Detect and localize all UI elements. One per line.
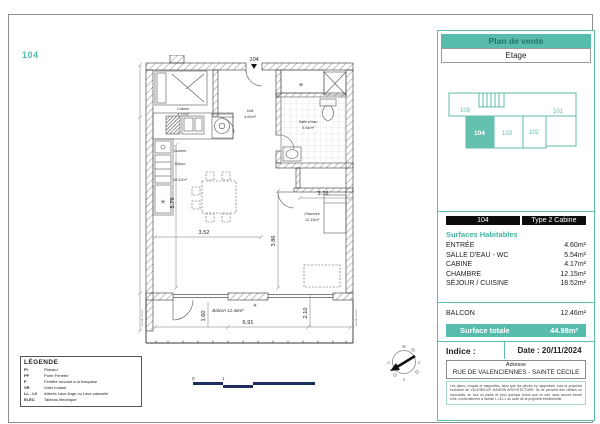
entry-unit-label: 104 — [249, 57, 258, 63]
compass: N E S O — [384, 334, 424, 386]
key-plan-label-101: 101 — [553, 109, 564, 115]
surface-row: CABINE4.17m² — [446, 260, 586, 270]
compass-s: S — [403, 377, 406, 382]
surface-row: SÉJOUR / CUISINE18.52m² — [446, 279, 586, 289]
compass-icon: N E S O — [384, 334, 424, 386]
label-chambre-area: 12.15m² — [305, 218, 320, 222]
scale-tick-1: 1 — [222, 376, 225, 381]
surface-value: 4.17m² — [564, 260, 586, 270]
info-panel: Plan de vente Etage 105 101 104 103 102 … — [437, 30, 595, 421]
dim-691: 6.91 — [243, 320, 254, 326]
date-label: Date : 20/11/2024 — [505, 346, 594, 355]
legal-notice: Les plans, croquis et maquettes, ainsi q… — [446, 381, 586, 405]
key-plan-label-104: 104 — [474, 130, 485, 137]
surface-label: CABINE — [446, 260, 472, 270]
surface-value: 5.54m² — [564, 251, 586, 261]
floor-plan-drawing: 104 Cabine 4.17m² Hall 4.60m² Salle d'ea… — [128, 55, 435, 357]
total-section: BALCON12.46m² Surface totale 44.98m² — [438, 302, 594, 341]
key-plan-label-105: 105 — [460, 108, 471, 114]
scale-segment — [223, 385, 253, 388]
compass-o: O — [387, 360, 390, 365]
legend-label: Tableau électrique — [44, 397, 76, 403]
radiator-icon: ✳ — [298, 82, 303, 89]
surface-row: SALLE D'EAU - WC5.54m² — [446, 251, 586, 261]
key-plan-drawing: 105 101 104 103 102 — [441, 85, 591, 163]
label-hall: Hall — [247, 109, 254, 113]
indice-label: Indice : — [438, 346, 504, 356]
label-chambre: Chambre — [304, 212, 320, 216]
label-balcon: Balcon 12.46m² — [212, 308, 244, 313]
address-box: Adresse RUE DE VALENCIENNES - SAINTE CEC… — [446, 360, 586, 379]
surface-totale-value: 44.98m² — [550, 326, 578, 335]
bathroom-floor — [281, 97, 346, 163]
address-value: RUE DE VALENCIENNES - SAINTE CECILE — [449, 369, 583, 376]
label-garde-corps-right: Garde corps — [354, 309, 358, 326]
label-salle-eau-area: 5.54m² — [302, 126, 315, 130]
surface-totale-bar: Surface totale 44.98m² — [446, 324, 586, 337]
surface-row: ENTRÉE4.60m² — [446, 241, 586, 251]
label-sejour-area: 18.52m² — [173, 178, 188, 182]
compass-n: N — [402, 344, 405, 349]
label-salle-eau: Salle d'eau — [299, 120, 319, 124]
unit-header-cell: 104 — [446, 216, 520, 225]
surface-value: 4.60m² — [564, 241, 586, 251]
dim-160: 1.60 — [201, 311, 207, 322]
surface-row: CHAMBRE12.15m² — [446, 270, 586, 280]
dim-579: 5.79 — [170, 198, 176, 209]
surface-label: CHAMBRE — [446, 270, 481, 280]
floor-label: Etage — [441, 48, 591, 63]
balcon-value: 12.46m² — [560, 309, 586, 319]
scale-bar: 0 1 — [186, 376, 326, 390]
legend-item: ELECTableau électrique — [24, 397, 138, 403]
label-cuisine: Cuisine — [174, 149, 187, 153]
radiator-icon: ✳ — [160, 199, 165, 206]
legend-title: LÉGENDE — [24, 359, 138, 366]
type-header-cell: Type 2 Cabine — [522, 216, 586, 225]
surfaces-title: Surfaces Habitables — [446, 230, 586, 239]
page-unit-number: 104 — [22, 50, 39, 60]
dim-386: 3.86 — [271, 236, 277, 247]
surface-totale-label: Surface totale — [460, 326, 510, 335]
dim-352: 3.52 — [199, 230, 210, 236]
meta-section: Indice : Date : 20/11/2024 Adresse RUE D… — [438, 341, 594, 405]
label-cabine-area: 4.17m² — [177, 113, 190, 117]
panel-title: Plan de vente — [441, 34, 591, 48]
surface-value: 12.15m² — [560, 270, 586, 280]
dim-210: 2.10 — [303, 308, 309, 319]
address-title: Adresse — [449, 362, 583, 368]
indice-date-row: Indice : Date : 20/11/2024 — [438, 342, 594, 359]
balcon-row: BALCON12.46m² — [446, 309, 586, 319]
surface-label: SALLE D'EAU - WC — [446, 251, 508, 261]
label-garde-corps-left: Garde corps — [140, 309, 144, 326]
label-sejour: Séjour — [175, 162, 187, 166]
radiator-icon: ✳ — [253, 303, 257, 309]
key-plan-label-102: 102 — [529, 130, 540, 136]
legend-box: LÉGENDE PlPlacard PFPorte Fenêtre FFenêt… — [20, 356, 142, 407]
unit-type-header: 104 Type 2 Cabine — [446, 216, 586, 225]
entry-arrow-icon — [251, 64, 257, 69]
surface-value: 18.52m² — [560, 279, 586, 289]
scale-tick-0: 0 — [192, 376, 195, 381]
scale-segment — [253, 382, 315, 385]
scale-segment — [193, 382, 223, 385]
label-cabine: Cabine — [177, 107, 189, 111]
surfaces-section: 104 Type 2 Cabine Surfaces Habitables EN… — [438, 211, 594, 302]
dim-316: 3.16 — [318, 191, 329, 197]
balcon-label: BALCON — [446, 309, 475, 319]
key-plan-label-103: 103 — [502, 131, 513, 137]
legend-abbr: ELEC — [24, 397, 44, 403]
compass-e: E — [418, 360, 421, 365]
label-hall-area: 4.60m² — [244, 115, 257, 119]
floor-plan: 104 Cabine 4.17m² Hall 4.60m² Salle d'ea… — [128, 55, 435, 357]
surface-label: SÉJOUR / CUISINE — [446, 279, 509, 289]
surface-label: ENTRÉE — [446, 241, 474, 251]
